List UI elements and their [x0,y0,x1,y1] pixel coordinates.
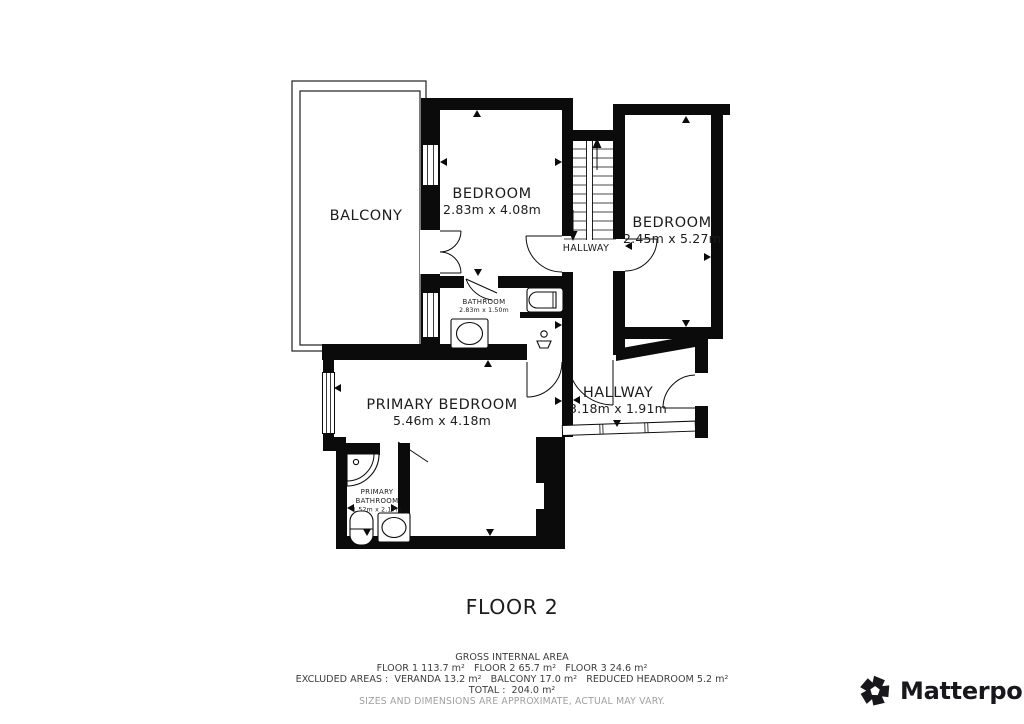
shower-icon [347,454,379,486]
radiator-icon [537,331,551,348]
primary-bathroom-label-line1: PRIMARY [361,488,394,496]
bathroom-dims: 2.83m x 1.50m [459,307,509,314]
window-bedroom-top [423,145,439,186]
toilet-icon-bathroom [451,319,488,348]
floorplan-page: BALCONY BEDROOM 2.83m x 4.08m BEDROOM 2.… [0,0,1024,724]
floor-label: FLOOR 2 [0,595,1024,619]
bedroom-right-dims: 2.45m x 5.27m [623,231,721,246]
primary-bathroom-dims: 1.52m x 2.17m [352,507,402,514]
door-primary-bedroom [527,362,562,397]
dimension-arrows [334,110,711,536]
toilet-icon-primary [378,513,410,542]
primary-bathroom-label-line2: BATHROOM [356,497,399,505]
bathtub-icon [527,288,563,312]
window-band-hallway [562,421,695,435]
hallway-upper-label: HALLWAY [563,243,610,254]
bathroom-label: BATHROOM [463,298,506,306]
bedroom-top-label: BEDROOM [452,186,531,202]
bedroom-right-label: BEDROOM [632,215,711,231]
matterport-logo-text: Matterport [900,677,1024,705]
walls [322,98,730,549]
matterport-logo: Matterport ® [857,672,1024,710]
window-primary-bedroom [323,373,335,434]
primary-bedroom-dims: 5.46m x 4.18m [393,413,491,428]
sink-icon [350,511,373,545]
window-bathroom [423,293,439,338]
door-bedroom-top [526,236,562,272]
balcony-label: BALCONY [330,208,403,224]
hallway-lower-label: HALLWAY [583,385,653,401]
bedroom-top-dims: 2.83m x 4.08m [443,202,541,217]
stairs-up-arrow [593,138,602,170]
door-balcony-french [440,231,461,273]
hallway-lower-dims: 3.18m x 1.91m [569,401,667,416]
matterport-logo-icon [857,672,893,710]
gross-internal-area-title: GROSS INTERNAL AREA [0,652,1024,663]
door-hallway-right [663,375,695,408]
primary-bedroom-label: PRIMARY BEDROOM [366,397,517,413]
